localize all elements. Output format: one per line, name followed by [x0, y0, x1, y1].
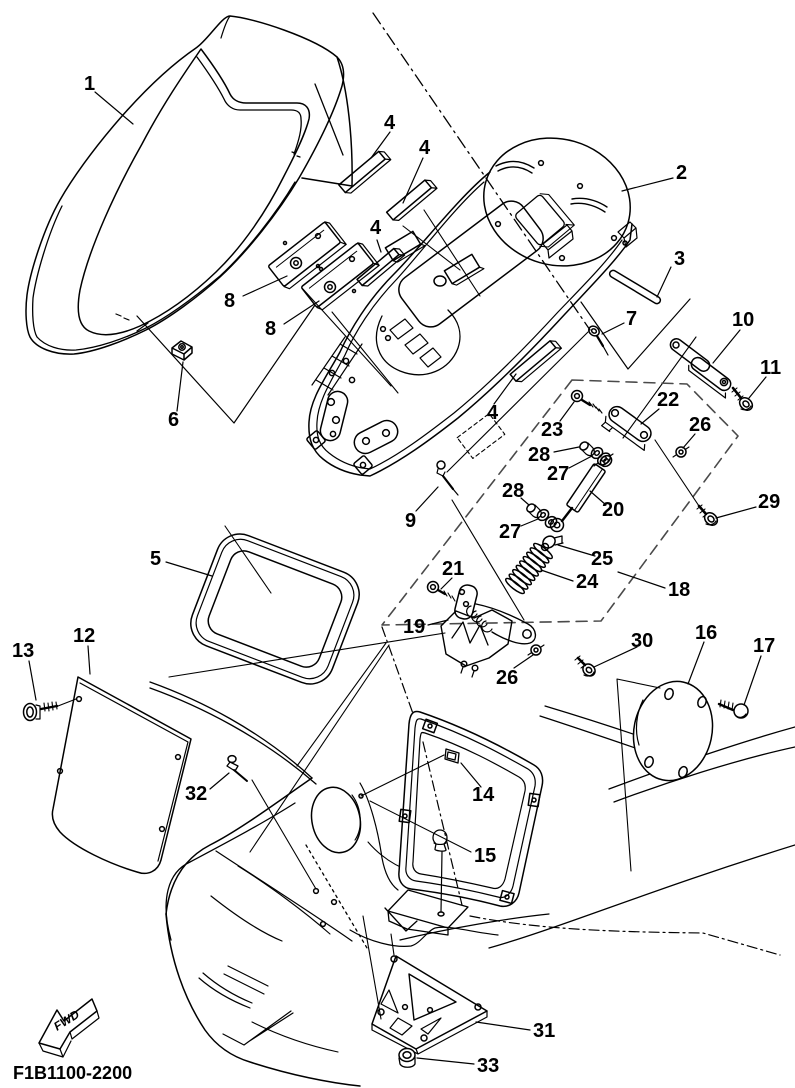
- svg-text:15: 15: [474, 845, 496, 867]
- svg-text:18: 18: [668, 579, 690, 601]
- svg-text:12: 12: [73, 625, 95, 647]
- svg-text:32: 32: [185, 783, 207, 805]
- svg-text:24: 24: [576, 571, 599, 593]
- svg-text:31: 31: [533, 1020, 555, 1042]
- svg-text:1: 1: [84, 73, 95, 95]
- svg-text:27: 27: [499, 521, 521, 543]
- svg-text:22: 22: [657, 389, 679, 411]
- svg-text:8: 8: [265, 318, 276, 340]
- svg-text:4: 4: [487, 402, 499, 424]
- svg-text:28: 28: [528, 444, 550, 466]
- svg-text:25: 25: [591, 548, 613, 570]
- svg-text:17: 17: [753, 635, 775, 657]
- svg-text:26: 26: [689, 414, 711, 436]
- svg-text:9: 9: [405, 510, 416, 532]
- svg-text:4: 4: [370, 217, 382, 239]
- svg-text:F1B1100-2200: F1B1100-2200: [13, 1063, 132, 1083]
- svg-text:20: 20: [602, 499, 624, 521]
- svg-text:5: 5: [150, 548, 161, 570]
- svg-text:27: 27: [547, 463, 569, 485]
- svg-text:29: 29: [758, 491, 780, 513]
- svg-text:21: 21: [442, 558, 464, 580]
- svg-text:23: 23: [541, 419, 563, 441]
- svg-text:13: 13: [12, 640, 34, 662]
- svg-text:11: 11: [760, 357, 781, 379]
- svg-text:2: 2: [676, 162, 687, 184]
- svg-text:14: 14: [472, 784, 495, 806]
- svg-text:26: 26: [496, 667, 518, 689]
- svg-text:6: 6: [168, 409, 179, 431]
- svg-text:16: 16: [695, 622, 717, 644]
- svg-text:3: 3: [674, 248, 685, 270]
- svg-text:8: 8: [224, 290, 235, 312]
- svg-text:4: 4: [419, 137, 431, 159]
- svg-text:4: 4: [384, 112, 396, 134]
- svg-text:33: 33: [477, 1055, 499, 1077]
- svg-text:10: 10: [732, 309, 754, 331]
- svg-text:19: 19: [403, 616, 425, 638]
- svg-text:7: 7: [626, 308, 637, 330]
